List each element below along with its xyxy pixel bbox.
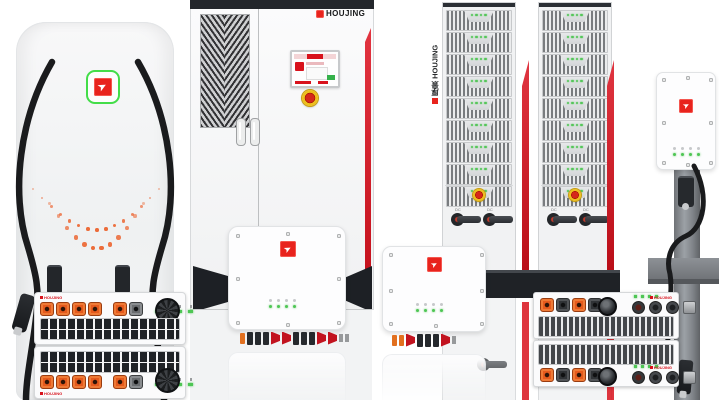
power-module: HOUJING [533,292,679,339]
module-brand-label: HOUJING [650,295,672,300]
dark-connector [293,332,299,345]
status-led [484,102,487,105]
status-led [471,58,474,61]
status-led [571,102,574,105]
status-led [576,58,579,61]
rack-module [446,76,512,97]
status-led [571,80,574,83]
rectifier-module-pair: HOUJING HOUJING [34,292,186,400]
status-led [440,303,443,306]
screen-text-line [306,62,324,65]
screw [286,323,290,327]
module-stack [542,10,608,208]
status-led [480,14,483,17]
round-connector-set [632,301,696,314]
status-led [580,14,583,17]
status-led [580,190,583,193]
switch-handle [553,216,577,223]
screw [236,321,240,325]
round-connector-set [632,371,696,384]
dark-connector [255,332,261,345]
led-dot-orange [133,214,136,217]
status-led [277,305,280,308]
wallbox-inverter-small: ➤ [382,246,486,332]
switch-label: DC [487,207,493,212]
rack-module [542,32,608,53]
dark-connector [433,334,439,347]
screen-logo-block [295,62,304,71]
dark-connector [309,332,315,345]
module-led-panel [464,143,493,154]
status-led [484,36,487,39]
led-dot-orange [41,197,43,199]
orange-connector [56,302,70,316]
status-led [480,36,483,39]
brand-logo-icon: ➤ [427,257,442,272]
connector-holster [115,265,130,294]
status-led [484,58,487,61]
dark-connector [417,334,423,347]
brand-logo-icon [316,10,324,18]
dark-connector [301,332,307,345]
module-led-panel [464,11,493,22]
gray-connector [452,336,456,344]
red-accent-stripe [522,60,529,276]
rack-module [446,54,512,75]
led-dot-orange [48,202,51,205]
tower-top-strip [539,3,611,7]
status-led [567,14,570,17]
screw [389,289,393,293]
screw [286,232,290,236]
led-row [269,299,296,302]
status-led [471,146,474,149]
screw [337,277,341,281]
status-led [480,146,483,149]
status-led [480,124,483,127]
orange-connector [113,302,127,316]
dark-connector [263,332,269,345]
screw [337,321,341,325]
led-dot-orange [99,246,104,251]
switch-handle [489,216,513,223]
brand-logo-text: HOUJING [326,9,365,18]
brand-logo: HOUJING [316,9,365,18]
dark-connector [649,301,662,314]
status-led [580,102,583,105]
led-dot-orange [65,226,69,230]
adjust-knob [598,297,617,316]
adjust-knob [598,367,617,386]
red-accent-stripe [522,302,529,400]
led-dot-orange [32,188,34,190]
screen-footer-block [318,81,328,84]
screw [434,324,438,328]
dark-connector [666,301,679,314]
orange-connector [40,302,54,316]
screen-header [294,54,336,59]
status-led-grid [416,303,443,315]
status-led [567,146,570,149]
orange-connector [56,375,70,389]
led-group [188,305,193,313]
screw [389,253,393,257]
status-led [580,124,583,127]
status-led [471,36,474,39]
status-led [567,124,570,127]
status-led [484,190,487,193]
orange-connector [540,368,554,382]
orange-connector [113,375,127,389]
switch-handle [457,216,481,223]
door-handle [250,118,260,146]
dark-connector [247,332,253,345]
status-led [475,146,478,149]
status-led [471,168,474,171]
red-connector [271,332,280,345]
rack-module [446,10,512,31]
screw [480,289,484,293]
status-led [480,80,483,83]
status-led [277,299,280,302]
module-brand-label: HOUJING [40,295,62,300]
switch-label: DC [551,207,557,212]
dark-connector [129,375,143,389]
wallbox-body: ➤ [382,246,486,332]
bottom-connector-row [392,332,456,348]
status-led [567,168,570,171]
led-dot-orange [158,188,160,190]
status-led [641,295,644,298]
orange-connector [88,302,102,316]
module-grille [538,344,674,365]
screw [480,253,484,257]
status-led-grid [269,299,296,311]
status-led [480,58,483,61]
led-dot-orange [116,235,120,239]
status-led [416,309,419,312]
module-led-panel [560,55,589,66]
wallbox-inverter: ➤ [228,226,346,330]
module-led-panel [464,33,493,44]
connector-set [40,375,143,389]
rack-module [542,164,608,185]
module-led-panel [464,121,493,132]
status-led [475,14,478,17]
status-led [471,80,474,83]
status-led [567,58,570,61]
panel-seam [445,185,513,186]
module-led-panel [464,99,493,110]
bottom-connector-row [240,330,349,346]
orange-connector [72,375,86,389]
screw [236,234,240,238]
connector-set [40,302,143,316]
gray-connector [339,334,343,342]
red-connector [328,332,337,345]
module-led-panel [464,165,493,176]
dark-connector [649,371,662,384]
led-dot-orange [91,246,96,251]
status-led [269,299,272,302]
switch-label: DC [455,207,461,212]
led-row [269,305,296,308]
connector-holster [47,265,62,294]
led-dot-orange [108,242,113,247]
connector-set [540,298,602,312]
connector-set [540,368,602,382]
status-led [475,168,478,171]
gray-connector [345,334,349,342]
module-led-panel [560,165,589,176]
led-indicator-arc [24,178,166,278]
touchscreen-display [290,50,340,88]
led-dot-orange [82,242,87,247]
power-module-pair-wide: HOUJING HOUJING [533,292,679,388]
power-module: HOUJING [533,340,679,387]
led-tick [190,305,192,308]
led-dot-orange [74,235,78,239]
dark-connector [129,302,143,316]
status-led [475,36,478,39]
screw [337,234,341,238]
door-handle [236,118,246,146]
orange-connector [392,335,397,346]
rectifier-module: HOUJING [34,292,186,345]
module-grille [40,318,180,340]
red-accent-stripe [607,60,614,276]
switch-handle [483,361,507,368]
led-dot-orange [68,219,71,222]
status-led [571,58,574,61]
brand-logo-icon: ➤ [94,78,112,96]
status-led [471,102,474,105]
rotary-switch: DC [483,213,515,227]
rack-module [542,120,608,141]
led-tick [190,378,192,381]
status-led [471,14,474,17]
red-connector [406,334,415,347]
status-led [269,305,272,308]
rack-module [446,164,512,185]
dark-connector [556,298,570,312]
status-led [293,299,296,302]
screen-green-button [327,75,335,80]
status-led [567,36,570,39]
status-led [432,303,435,306]
rack-module [542,10,608,31]
status-led [576,146,579,149]
rectifier-module: HOUJING [34,346,186,399]
status-led [571,14,574,17]
status-led [580,80,583,83]
status-led [475,80,478,83]
status-led [580,168,583,171]
led-group [188,378,193,386]
orange-connector [240,333,245,344]
orange-connector [540,298,554,312]
status-led [285,305,288,308]
status-led [580,36,583,39]
status-led [188,310,193,313]
status-led [580,58,583,61]
status-led [567,80,570,83]
brand-logo: ➤ [86,70,120,104]
led-dot-orange [57,214,60,217]
led-dot-orange [104,227,108,231]
darkred-connector [632,301,645,314]
cooling-fan [155,368,180,393]
status-led [484,146,487,149]
rack-module [542,54,608,75]
status-led [188,383,193,386]
screen-footer-block [295,81,311,84]
status-led [484,168,487,171]
dark-connector [666,371,679,384]
status-led [571,146,574,149]
screen-chart-area [306,67,328,80]
silver-connector [683,301,696,314]
rack-module [446,98,512,119]
status-led [484,80,487,83]
led-dot-orange [142,202,145,205]
status-led [634,295,637,298]
rotary-switch: DC [547,213,579,227]
status-led [471,124,474,127]
led-dot-orange [122,219,125,222]
module-led-panel [464,77,493,88]
dark-connector [556,368,570,382]
module-led-panel [560,77,589,88]
wallbox-reflection [228,352,346,400]
orange-connector [572,298,586,312]
status-led [576,36,579,39]
status-led [440,309,443,312]
rack-module [542,142,608,163]
screw [480,322,484,326]
connector-row: HOUJING [538,365,674,384]
led-dot-orange [50,205,53,208]
led-dot-orange [86,227,90,231]
emergency-stop-button [569,189,581,201]
status-led [576,102,579,105]
status-led [475,102,478,105]
status-led [576,168,579,171]
screw [236,277,240,281]
panel-seam [541,185,609,186]
vertical-brand-label: 厚景 HOUJING [429,8,441,104]
dark-connector [425,334,431,347]
status-led [571,168,574,171]
module-led-panel [560,143,589,154]
status-led [580,146,583,149]
charging-gun [678,176,694,207]
status-led [571,36,574,39]
rotary-switch: DC [451,213,483,227]
vertical-brand-text: 厚景 HOUJING [430,45,441,96]
status-led [571,124,574,127]
status-led [416,303,419,306]
rack-module [446,120,512,141]
red-connector [317,332,326,345]
orange-connector [399,335,404,346]
orange-connector [40,375,54,389]
module-led-panel [560,33,589,44]
status-led [484,14,487,17]
brand-logo-icon: ➤ [280,241,296,257]
status-led [432,309,435,312]
status-led [634,365,637,368]
wallbox-reflection [382,354,486,400]
tower-frame: DC DC [538,2,612,294]
status-led [285,299,288,302]
rack-module [446,32,512,53]
module-brand-label: HOUJING [40,391,62,396]
red-connector [441,334,450,347]
darkred-connector [632,371,645,384]
status-led [424,303,427,306]
orange-connector [88,375,102,389]
module-led-panel [560,11,589,22]
status-led [480,168,483,171]
silver-connector [683,371,696,384]
module-led-panel [464,55,493,66]
rack-module [542,76,608,97]
led-row [416,303,443,306]
status-led [576,80,579,83]
module-grille [538,316,674,337]
orange-connector [72,302,86,316]
status-led [576,14,579,17]
switch-label: DC [583,207,589,212]
led-dot-orange [95,228,99,232]
led-dot-orange [149,197,151,199]
orange-connector [572,368,586,382]
rotary-switch: DC [579,213,611,227]
emergency-stop-button [302,90,318,106]
status-led [567,102,570,105]
led-row [416,309,443,312]
switch-handle [585,216,609,223]
led-dot-orange [113,224,116,227]
module-led-panel [560,121,589,132]
product-collage: ➤ HOUJING [0,0,719,400]
tower-top-strip [443,3,515,7]
emergency-stop-button [473,189,485,201]
status-led [293,305,296,308]
screw [389,322,393,326]
rack-module [446,142,512,163]
status-led [475,124,478,127]
status-led [641,365,644,368]
status-led [424,309,427,312]
status-led [484,124,487,127]
rack-module [542,98,608,119]
status-led [576,124,579,127]
connector-row: HOUJING [538,295,674,314]
wallbox-body: ➤ [228,226,346,330]
cabinet-top-band [190,0,374,9]
status-led [480,102,483,105]
module-stack [446,10,512,208]
red-connector [282,332,291,345]
led-dot-orange [140,205,143,208]
ventilation-grille [200,14,250,128]
led-dot-orange [125,226,129,230]
status-led [475,58,478,61]
module-brand-label: HOUJING [650,365,672,370]
module-led-panel [560,99,589,110]
